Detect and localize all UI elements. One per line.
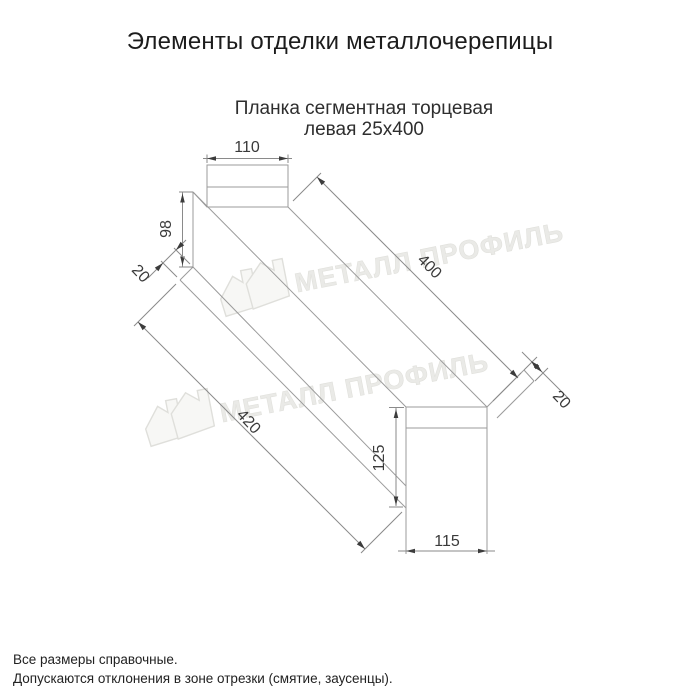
dim-right-lip: 20: [522, 352, 574, 412]
dim-left-height: 98: [158, 192, 193, 267]
dim-right-width-label: 115: [434, 533, 460, 550]
footnote-line2: Допускаются отклонения в зоне отрезки (с…: [13, 669, 393, 688]
dim-left-lip-label: 20: [128, 262, 153, 287]
technical-drawing: МЕТАЛЛ ПРОФИЛЬ МЕТАЛЛ ПРОФИЛЬ: [0, 0, 700, 700]
dim-top-flange-label: 110: [234, 139, 260, 156]
drawing-page: Элементы отделки металлочерепицы Планка …: [0, 0, 700, 700]
watermark-logo: МЕТАЛЛ ПРОФИЛЬ: [215, 205, 567, 317]
footnotes: Все размеры справочные. Допускаются откл…: [13, 650, 393, 688]
footnote-line1: Все размеры справочные.: [13, 650, 393, 669]
dim-top-flange: 110: [203, 139, 292, 163]
dim-left-height-label: 98: [158, 220, 175, 238]
dim-right-height-label: 125: [371, 445, 388, 472]
dim-right-width: 115: [398, 533, 495, 553]
watermark-logo-2: МЕТАЛЛ ПРОФИЛЬ: [140, 335, 492, 447]
dim-right-height: 125: [371, 408, 404, 508]
dim-right-lip-label: 20: [549, 388, 574, 413]
